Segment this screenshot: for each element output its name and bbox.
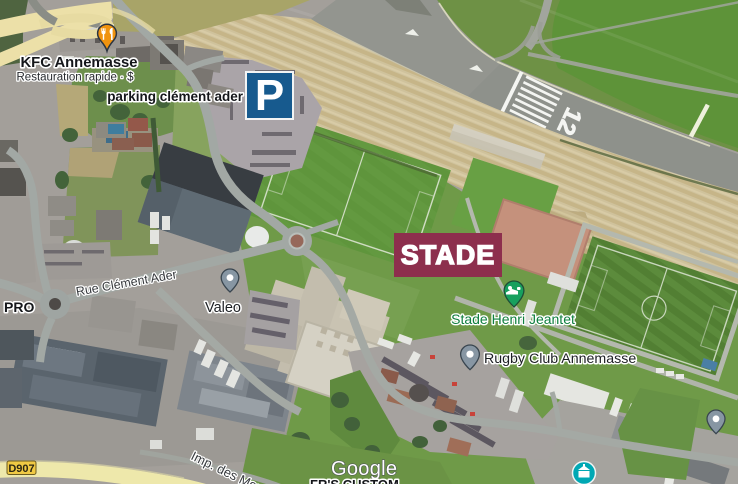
- svg-text:Valeo: Valeo: [205, 300, 241, 316]
- svg-text:STADE: STADE: [401, 240, 496, 270]
- svg-text:D907: D907: [8, 463, 34, 475]
- svg-text:PRO: PRO: [4, 299, 34, 315]
- svg-text:KFC Annemasse: KFC Annemasse: [20, 55, 137, 71]
- svg-text:Stade Henri Jeantet: Stade Henri Jeantet: [451, 311, 575, 327]
- svg-text:parking clément ader: parking clément ader: [107, 89, 244, 104]
- svg-text:FR'S CUSTOM: FR'S CUSTOM: [310, 477, 399, 484]
- svg-text:P: P: [255, 71, 284, 120]
- svg-text:Rugby Club Annemasse: Rugby Club Annemasse: [484, 351, 636, 367]
- svg-text:Restauration rapide · $: Restauration rapide · $: [17, 72, 135, 84]
